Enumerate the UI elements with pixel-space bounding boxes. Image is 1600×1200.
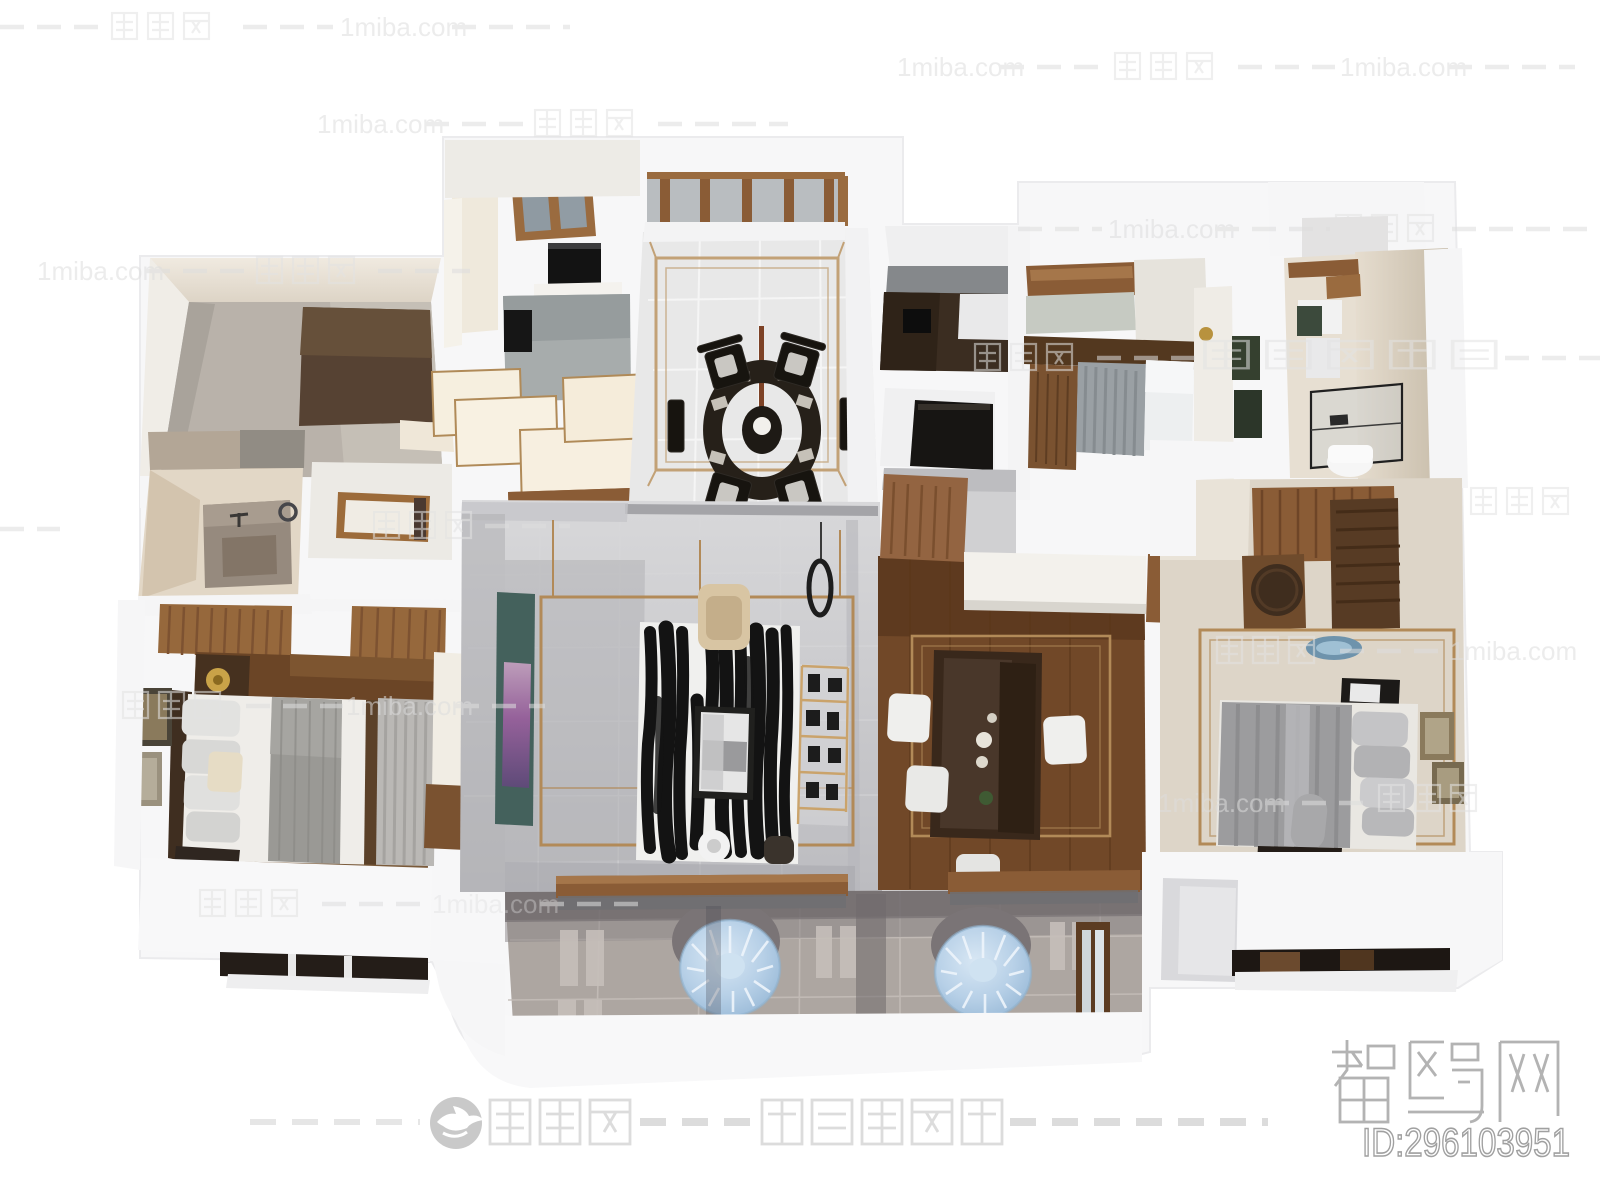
svg-text:ID:296103951: ID:296103951	[1362, 1121, 1570, 1165]
svg-text:1miba.com: 1miba.com	[37, 256, 164, 286]
svg-text:1miba.com: 1miba.com	[346, 691, 473, 721]
svg-text:1miba.com: 1miba.com	[1450, 636, 1577, 666]
svg-text:1miba.com: 1miba.com	[340, 12, 467, 42]
